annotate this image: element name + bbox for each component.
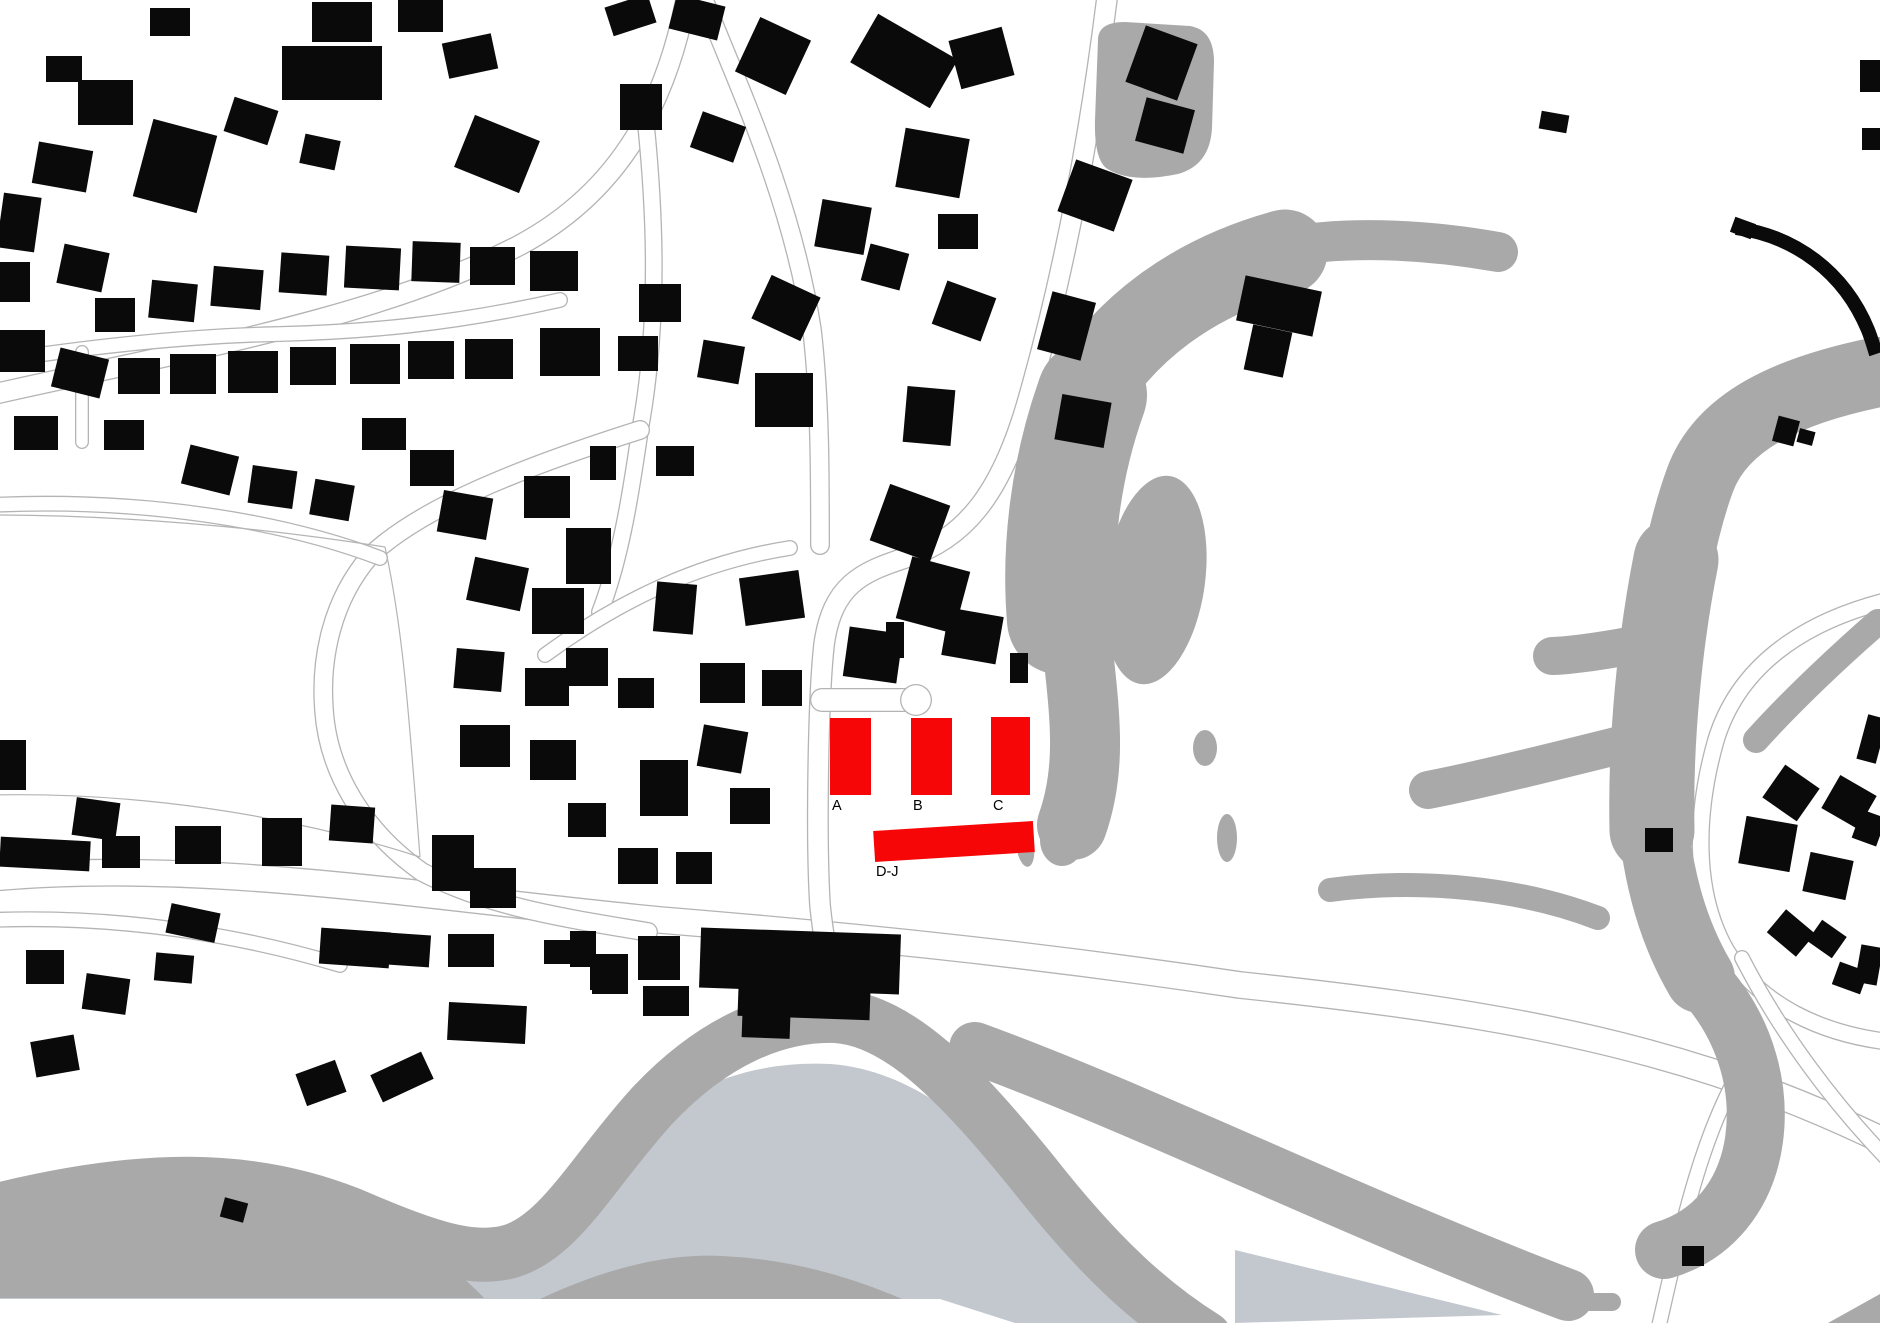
building-footprint	[466, 557, 529, 611]
building-footprint	[398, 0, 443, 32]
building-footprint	[78, 80, 133, 125]
building-arc	[1736, 228, 1876, 354]
building-footprint	[465, 339, 513, 379]
building-footprint	[312, 2, 372, 42]
building-footprint	[730, 788, 770, 824]
terrain-blob	[1217, 814, 1237, 862]
terrain-blob	[1193, 730, 1217, 766]
building-footprint	[150, 8, 190, 36]
building-footprint	[1860, 60, 1880, 92]
building-footprint	[0, 262, 30, 302]
building-footprint	[700, 663, 745, 703]
building-footprint	[133, 119, 217, 213]
building-footprint	[408, 341, 454, 379]
building-footprint	[282, 46, 382, 100]
building-footprint	[742, 1015, 791, 1039]
building-footprint	[148, 280, 198, 323]
terrain-band	[1552, 640, 1660, 656]
building-footprint	[0, 330, 45, 372]
building-footprint	[1767, 909, 1815, 956]
label-building-b: B	[913, 798, 923, 814]
building-footprint	[1054, 394, 1111, 448]
building-footprint	[592, 954, 628, 994]
building-footprint	[32, 142, 93, 193]
building-footprint	[1807, 920, 1846, 959]
highlight-building-b	[911, 718, 952, 795]
building-footprint	[640, 760, 688, 816]
building-footprint	[1856, 714, 1880, 764]
building-footprint	[410, 450, 454, 486]
building-footprint	[104, 420, 144, 450]
building-footprint	[697, 724, 749, 773]
building-footprint	[210, 266, 263, 310]
building-footprint	[454, 115, 540, 193]
building-footprint	[1010, 653, 1028, 683]
building-footprint	[295, 1060, 346, 1106]
building-footprint	[26, 950, 64, 984]
road-edge-line	[385, 547, 420, 857]
building-footprint	[470, 247, 515, 285]
building-footprint	[118, 358, 160, 394]
building-footprint	[676, 852, 712, 884]
building-footprint	[656, 446, 694, 476]
building-footprint	[170, 354, 216, 394]
building-footprint	[755, 373, 813, 427]
building-footprint	[568, 803, 606, 837]
label-building-c: C	[993, 798, 1003, 814]
building-footprint	[95, 298, 135, 332]
building-footprint	[1645, 828, 1673, 852]
building-footprint	[850, 14, 958, 108]
building-footprint	[1862, 128, 1880, 150]
building-footprint	[344, 246, 401, 291]
building-footprint	[618, 336, 658, 371]
building-footprint	[697, 340, 745, 385]
building-footprint	[299, 134, 340, 171]
building-footprint	[1738, 816, 1798, 872]
terrain-band	[1664, 978, 1756, 1250]
building-footprint	[653, 581, 697, 634]
building-footprint	[46, 56, 82, 82]
building-footprint	[1244, 324, 1293, 377]
building-footprint	[620, 84, 662, 130]
building-footprint	[903, 386, 956, 446]
terrain-blob	[1040, 814, 1084, 866]
building-footprint	[1682, 1246, 1704, 1266]
building-footprint	[154, 952, 194, 983]
building-footprint	[524, 476, 570, 518]
building-footprint	[437, 490, 494, 540]
building-footprint	[56, 244, 109, 293]
building-footprint	[181, 445, 239, 496]
building-footprint	[738, 986, 871, 1021]
building-footprint	[699, 928, 901, 995]
building-footprint	[814, 199, 872, 255]
site-plan-svg: ABCD-J	[0, 0, 1880, 1323]
terrain-area	[1828, 1294, 1880, 1323]
building-footprint	[530, 740, 576, 780]
label-building-a: A	[832, 798, 842, 814]
building-footprint	[566, 528, 611, 584]
building-footprint	[0, 193, 42, 253]
building-footprint	[224, 97, 279, 145]
building-footprint	[442, 33, 498, 79]
building-footprint	[279, 252, 330, 295]
building-footprint	[938, 214, 978, 249]
building-footprint	[453, 648, 504, 692]
building-footprint	[941, 608, 1003, 665]
building-footprint	[540, 328, 600, 376]
building-footprint	[948, 27, 1014, 90]
building-footprint	[72, 797, 121, 841]
building-footprint	[411, 241, 460, 283]
building-footprint	[319, 928, 391, 969]
building-footprint	[0, 837, 91, 872]
building-footprint	[329, 805, 375, 844]
building-footprint	[0, 740, 26, 790]
building-footprint	[886, 622, 904, 658]
building-footprint	[370, 1052, 433, 1103]
terrain-area	[0, 1299, 1015, 1323]
building-footprint	[102, 836, 140, 868]
building-footprint	[895, 128, 969, 198]
terrain-band	[1756, 622, 1878, 740]
building-footprint	[590, 446, 616, 480]
building-footprint	[618, 848, 658, 884]
building-footprint	[350, 344, 400, 384]
building-footprint	[432, 835, 474, 891]
label-building-dj: D-J	[876, 864, 899, 880]
building-footprint	[1762, 765, 1819, 822]
building-footprint	[638, 936, 680, 980]
building-footprint	[470, 868, 516, 908]
building-footprint	[532, 588, 584, 634]
highlight-building-a	[830, 718, 871, 795]
building-footprint	[262, 818, 302, 866]
terrain-band	[1330, 885, 1598, 918]
building-footprint	[932, 280, 997, 341]
building-footprint	[30, 1034, 80, 1077]
building-footprint	[82, 973, 131, 1015]
building-footprint	[639, 284, 681, 322]
building-footprint	[762, 670, 802, 706]
figure-ground-site-plan: ABCD-J	[0, 0, 1880, 1323]
highlight-building-c	[991, 717, 1030, 795]
building-footprint	[228, 351, 278, 393]
building-footprint	[618, 678, 654, 708]
building-footprint	[690, 111, 746, 162]
building-footprint	[175, 826, 221, 864]
building-footprint	[861, 243, 909, 290]
terrain-band	[1428, 740, 1640, 790]
building-footprint	[248, 465, 298, 509]
building-footprint	[739, 570, 805, 626]
building-footprint	[530, 251, 578, 291]
building-footprint	[460, 725, 510, 767]
building-footprint	[447, 1002, 527, 1044]
building-footprint	[290, 347, 336, 385]
building-footprint	[362, 418, 406, 450]
building-footprint	[448, 934, 494, 967]
building-footprint	[525, 668, 569, 706]
building-footprint	[604, 0, 656, 36]
terrain-band	[1072, 620, 1085, 825]
highlight-layer	[830, 717, 1035, 862]
building-footprint	[309, 479, 355, 521]
building-footprint	[643, 986, 689, 1016]
building-footprint	[566, 648, 608, 686]
building-footprint	[387, 933, 431, 968]
building-footprint	[1539, 111, 1570, 134]
highlight-building-dj	[873, 821, 1035, 862]
terrain-band	[1652, 560, 1676, 830]
building-footprint	[1802, 852, 1853, 900]
building-footprint	[14, 416, 58, 450]
